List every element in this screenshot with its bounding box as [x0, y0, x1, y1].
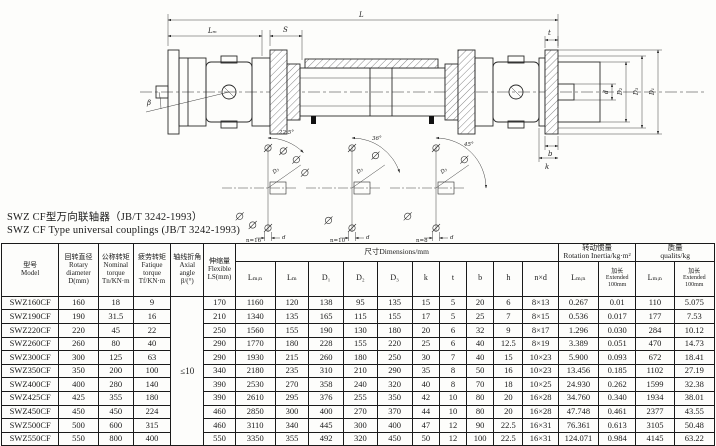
value-cell: 50.48: [674, 419, 714, 433]
value-cell: 40: [467, 351, 494, 365]
bolt-circle-label-1: D₃: [271, 167, 281, 176]
value-cell: 210: [344, 364, 377, 378]
col-header-lm: Lₘ: [275, 261, 308, 296]
value-cell: 390: [204, 391, 235, 405]
value-cell: 16: [494, 364, 523, 378]
model-cell: SWZ500CF: [2, 419, 59, 433]
value-cell: 43.55: [674, 405, 714, 419]
value-cell: 12.5: [494, 337, 523, 351]
value-cell: 16×31: [523, 432, 558, 446]
value-cell: 44: [412, 405, 439, 419]
value-cell: 0.030: [599, 323, 636, 337]
value-cell: 1930: [235, 351, 275, 365]
value-cell: 140: [133, 378, 170, 392]
value-cell: 250: [204, 323, 235, 337]
table-row: SWZ160CF160189≤1017011601201389513515520…: [2, 296, 715, 310]
value-cell: 135: [275, 310, 308, 324]
value-cell: 24.930: [558, 378, 598, 392]
dim-label-D3: D₃: [633, 87, 640, 96]
value-cell: 370: [377, 405, 412, 419]
value-cell: 12: [439, 419, 466, 433]
value-cell: 445: [309, 419, 344, 433]
value-cell: 235: [275, 364, 308, 378]
value-cell: 124.071: [558, 432, 598, 446]
value-cell: 3350: [235, 432, 275, 446]
col-header-rotary-diameter: 回转直径 Rotary diameter D(mm): [59, 244, 98, 297]
value-cell: 18: [494, 378, 523, 392]
value-cell: 425: [59, 391, 98, 405]
value-cell: 270: [344, 405, 377, 419]
value-cell: 10×23: [523, 364, 558, 378]
value-cell: 16×28: [523, 405, 558, 419]
angle-label-2: 36°: [372, 136, 382, 142]
value-cell: 400: [133, 432, 170, 446]
value-cell: 0.185: [599, 364, 636, 378]
col-header-axial-angle: 轴线折角 Axial angle β/(°): [171, 244, 204, 297]
value-cell: 31.5: [98, 310, 133, 324]
value-cell: 460: [204, 405, 235, 419]
value-cell: 170: [204, 296, 235, 310]
col-header-model: 型号 Model: [2, 244, 59, 297]
dim-label-L: L: [358, 11, 364, 19]
dim-label-Lm: Lₘ: [207, 27, 217, 35]
angle-label-3: 45°: [463, 142, 474, 148]
model-cell: SWZ220CF: [2, 323, 59, 337]
value-cell: 672: [636, 351, 674, 365]
group-header-rotation-inertia: 转动惯量 Rotation Inertia/kg·m²: [558, 244, 636, 262]
value-cell: 16: [133, 310, 170, 324]
value-cell: 320: [344, 432, 377, 446]
value-cell: 12: [439, 432, 466, 446]
bolt-circle-label-2: D₃: [355, 167, 365, 176]
col-header-d2: D₂: [344, 261, 377, 296]
value-cell: 40: [133, 337, 170, 351]
table-row: SWZ550CF55080040055033503554923204505012…: [2, 432, 715, 446]
value-cell: 13.456: [558, 364, 598, 378]
value-cell: 42: [412, 391, 439, 405]
value-cell: 40: [467, 337, 494, 351]
value-cell: 110: [636, 296, 674, 310]
dim-label-D1: D₁: [649, 88, 656, 96]
value-cell: 260: [59, 337, 98, 351]
value-cell: 120: [275, 296, 308, 310]
value-cell: 165: [309, 310, 344, 324]
value-cell: 10×23: [523, 351, 558, 365]
model-cell: SWZ400CF: [2, 378, 59, 392]
value-cell: 210: [204, 310, 235, 324]
model-cell: SWZ260CF: [2, 337, 59, 351]
value-cell: 177: [636, 310, 674, 324]
value-cell: 9: [133, 296, 170, 310]
col-header-flexible: 伸缩量 Flexible LS(mm): [204, 244, 235, 297]
value-cell: 3.389: [558, 337, 598, 351]
value-cell: 16×31: [523, 419, 558, 433]
value-cell: 4145: [636, 432, 674, 446]
value-cell: 20: [494, 391, 523, 405]
value-cell: 155: [377, 310, 412, 324]
model-cell: SWZ160CF: [2, 296, 59, 310]
angle-label-1: 22.5°: [278, 130, 294, 136]
value-cell: 350: [377, 391, 412, 405]
value-cell: 63: [133, 351, 170, 365]
value-cell: 1599: [636, 378, 674, 392]
table-row: SWZ450CF45045022446028503004002703704410…: [2, 405, 715, 419]
value-cell: 2850: [235, 405, 275, 419]
value-cell: 0.613: [599, 419, 636, 433]
value-cell: 1770: [235, 337, 275, 351]
value-cell: 550: [204, 432, 235, 446]
group-header-mass: 质量 qualits/kg: [636, 244, 715, 262]
table-row: SWZ190CF19031.51621013401351651151551752…: [2, 310, 715, 324]
value-cell: 300: [59, 351, 98, 365]
detail-d-label-2: d: [366, 235, 370, 241]
value-cell: 16×28: [523, 391, 558, 405]
value-cell: 5: [439, 296, 466, 310]
value-cell: 300: [275, 405, 308, 419]
value-cell: 34.760: [558, 391, 598, 405]
value-cell: 376: [309, 391, 344, 405]
value-cell: 290: [377, 364, 412, 378]
value-cell: 80: [467, 405, 494, 419]
value-cell: 160: [59, 296, 98, 310]
value-cell: 125: [98, 351, 133, 365]
value-cell: 8: [439, 364, 466, 378]
value-cell: 1.296: [558, 323, 598, 337]
value-cell: 22.5: [494, 432, 523, 446]
value-cell: 800: [98, 432, 133, 446]
bolt-circle-label-3: D₃: [439, 167, 449, 176]
dim-label-beta: β: [146, 99, 151, 107]
value-cell: 310: [309, 364, 344, 378]
bolt-pattern-detail-2: [306, 138, 400, 241]
main-view: [140, 14, 704, 134]
value-cell: 50: [467, 364, 494, 378]
value-cell: 2377: [636, 405, 674, 419]
value-cell: 10: [439, 405, 466, 419]
value-cell: 22: [133, 323, 170, 337]
value-cell: 340: [204, 364, 235, 378]
value-cell: 15: [412, 296, 439, 310]
col-header-h: h: [494, 261, 523, 296]
value-cell: 0.536: [558, 310, 598, 324]
col-header-b: b: [467, 261, 494, 296]
value-cell: 18.41: [674, 351, 714, 365]
value-cell: 155: [275, 323, 308, 337]
value-cell: 8×13: [523, 296, 558, 310]
value-cell: 76.361: [558, 419, 598, 433]
value-cell: 25: [467, 310, 494, 324]
table-row: SWZ350CF35020010034021802353102102903585…: [2, 364, 715, 378]
value-cell: 70: [467, 378, 494, 392]
value-cell: 5.900: [558, 351, 598, 365]
value-cell: 260: [309, 351, 344, 365]
value-cell: 400: [309, 405, 344, 419]
value-cell: 14.73: [674, 337, 714, 351]
col-header-t: t: [439, 261, 466, 296]
axial-angle-cell: ≤10: [171, 296, 204, 446]
value-cell: 135: [377, 296, 412, 310]
value-cell: 7.53: [674, 310, 714, 324]
value-cell: 190: [59, 310, 98, 324]
value-cell: 358: [309, 378, 344, 392]
value-cell: 190: [309, 323, 344, 337]
value-cell: 1560: [235, 323, 275, 337]
doc-title-zh: SWZ CF型万向联轴器（JB/T 3242-1993）: [7, 209, 203, 224]
doc-title-en: SWZ CF Type universal couplings (JB/T 32…: [7, 225, 240, 236]
value-cell: 355: [98, 391, 133, 405]
value-cell: 600: [98, 419, 133, 433]
value-cell: 10: [439, 391, 466, 405]
value-cell: 180: [133, 391, 170, 405]
value-cell: 38.01: [674, 391, 714, 405]
value-cell: 20: [467, 296, 494, 310]
value-cell: 17: [412, 310, 439, 324]
value-cell: 130: [344, 323, 377, 337]
bolt-pattern-detail-3: [390, 138, 486, 241]
value-cell: 390: [204, 378, 235, 392]
group-header-dimensions: 尺寸Dimensions/mm: [235, 244, 558, 262]
value-cell: 470: [636, 337, 674, 351]
value-cell: 95: [344, 296, 377, 310]
detail-d-label-3: d: [450, 235, 454, 241]
value-cell: 355: [275, 432, 308, 446]
table-row: SWZ220CF22045222501560155190130180206329…: [2, 323, 715, 337]
value-cell: 155: [344, 337, 377, 351]
value-cell: 180: [344, 351, 377, 365]
value-cell: 250: [377, 351, 412, 365]
value-cell: 300: [344, 419, 377, 433]
col-header-mass-extended: 加长 Extended 100mm: [674, 261, 714, 296]
value-cell: 2180: [235, 364, 275, 378]
value-cell: 220: [377, 337, 412, 351]
value-cell: 8×17: [523, 323, 558, 337]
value-cell: 115: [344, 310, 377, 324]
value-cell: 240: [344, 378, 377, 392]
value-cell: 1934: [636, 391, 674, 405]
table-row: SWZ400CF40028014039025302703582403204087…: [2, 378, 715, 392]
value-cell: 50: [412, 432, 439, 446]
technical-drawing: L Lₘ S β t b k d D₂ D₃ D₁ 22.5° 36° 45° …: [0, 0, 716, 243]
value-cell: 450: [377, 432, 412, 446]
col-header-lmin: Lₘᵢₙ: [235, 261, 275, 296]
col-header-mass-lmin: Lₘᵢₙ: [636, 261, 674, 296]
dim-label-k: k: [545, 163, 549, 171]
value-cell: 20: [412, 323, 439, 337]
value-cell: 25: [412, 337, 439, 351]
value-cell: 47.748: [558, 405, 598, 419]
value-cell: 0.267: [558, 296, 598, 310]
value-cell: 80: [467, 391, 494, 405]
value-cell: 320: [377, 378, 412, 392]
value-cell: 270: [275, 378, 308, 392]
value-cell: 90: [467, 419, 494, 433]
dim-label-t: t: [548, 29, 551, 37]
value-cell: 15: [494, 351, 523, 365]
value-cell: 10.12: [674, 323, 714, 337]
value-cell: 220: [59, 323, 98, 337]
model-cell: SWZ450CF: [2, 405, 59, 419]
model-cell: SWZ425CF: [2, 391, 59, 405]
value-cell: 80: [98, 337, 133, 351]
value-cell: 350: [59, 364, 98, 378]
value-cell: 400: [377, 419, 412, 433]
col-header-nxd: n×d: [523, 261, 558, 296]
value-cell: 450: [59, 405, 98, 419]
value-cell: 8×15: [523, 310, 558, 324]
value-cell: 45: [98, 323, 133, 337]
value-cell: 290: [204, 351, 235, 365]
value-cell: 6: [494, 296, 523, 310]
dim-label-D2: D₂: [617, 87, 624, 96]
catalog-page: { "title": { "line1": "SWZ CF型万向联轴器（JB/T…: [0, 0, 716, 446]
table-row: SWZ260CF26080402901770180228155220256401…: [2, 337, 715, 351]
value-cell: 492: [309, 432, 344, 446]
value-cell: 40: [412, 378, 439, 392]
col-header-fatigue-torque: 疲劳转矩 Fatique torque Tf/KN·m: [133, 244, 170, 297]
value-cell: 280: [98, 378, 133, 392]
value-cell: 180: [377, 323, 412, 337]
value-cell: 3105: [636, 419, 674, 433]
col-header-inertia-extended: 加长 Extended 100mm: [599, 261, 636, 296]
col-header-d3: D₃: [377, 261, 412, 296]
detail-d-label-1: d: [282, 235, 286, 241]
col-header-nominal-torque: 公称转矩 Nominal torque Tn/KN·m: [98, 244, 133, 297]
value-cell: 228: [309, 337, 344, 351]
value-cell: 0.01: [599, 296, 636, 310]
value-cell: 400: [59, 378, 98, 392]
value-cell: 0.340: [599, 391, 636, 405]
value-cell: 0.093: [599, 351, 636, 365]
value-cell: 27.19: [674, 364, 714, 378]
value-cell: 550: [59, 432, 98, 446]
value-cell: 32.38: [674, 378, 714, 392]
value-cell: 500: [59, 419, 98, 433]
value-cell: 0.984: [599, 432, 636, 446]
value-cell: 8: [439, 378, 466, 392]
table-row: SWZ425CF42535518039026102953762553504210…: [2, 391, 715, 405]
table-row: SWZ500CF50060031546031103404453004004712…: [2, 419, 715, 433]
value-cell: 138: [309, 296, 344, 310]
model-cell: SWZ300CF: [2, 351, 59, 365]
value-cell: 0.051: [599, 337, 636, 351]
model-cell: SWZ550CF: [2, 432, 59, 446]
value-cell: 10×25: [523, 378, 558, 392]
dim-label-d: d: [603, 90, 610, 94]
col-header-inertia-lmin: Lₘᵢₙ: [558, 261, 598, 296]
value-cell: 284: [636, 323, 674, 337]
value-cell: 290: [204, 337, 235, 351]
value-cell: 180: [275, 337, 308, 351]
value-cell: 3110: [235, 419, 275, 433]
value-cell: 224: [133, 405, 170, 419]
value-cell: 200: [98, 364, 133, 378]
value-cell: 6: [439, 323, 466, 337]
value-cell: 9: [494, 323, 523, 337]
model-cell: SWZ190CF: [2, 310, 59, 324]
value-cell: 5.075: [674, 296, 714, 310]
value-cell: 1102: [636, 364, 674, 378]
value-cell: 8×19: [523, 337, 558, 351]
value-cell: 215: [275, 351, 308, 365]
col-header-d1: D₁: [309, 261, 344, 296]
dim-label-b: b: [548, 150, 553, 158]
model-cell: SWZ350CF: [2, 364, 59, 378]
value-cell: 255: [344, 391, 377, 405]
value-cell: 18: [98, 296, 133, 310]
value-cell: 20: [494, 405, 523, 419]
value-cell: 22.5: [494, 419, 523, 433]
value-cell: 0.262: [599, 378, 636, 392]
value-cell: 2610: [235, 391, 275, 405]
value-cell: 47: [412, 419, 439, 433]
value-cell: 32: [467, 323, 494, 337]
value-cell: 1160: [235, 296, 275, 310]
value-cell: 5: [439, 310, 466, 324]
value-cell: 35: [412, 364, 439, 378]
value-cell: 340: [275, 419, 308, 433]
value-cell: 63.22: [674, 432, 714, 446]
value-cell: 0.461: [599, 405, 636, 419]
col-header-k: k: [412, 261, 439, 296]
table-row: SWZ300CF30012563290193021526018025030740…: [2, 351, 715, 365]
value-cell: 1340: [235, 310, 275, 324]
value-cell: 100: [467, 432, 494, 446]
value-cell: 450: [98, 405, 133, 419]
value-cell: 7: [494, 310, 523, 324]
dimension-table: 型号 Model 回转直径 Rotary diameter D(mm) 公称转矩…: [1, 243, 715, 446]
value-cell: 7: [439, 351, 466, 365]
value-cell: 30: [412, 351, 439, 365]
table-body: SWZ160CF160189≤1017011601201389513515520…: [2, 296, 715, 446]
dim-label-S: S: [283, 26, 288, 34]
value-cell: 2530: [235, 378, 275, 392]
value-cell: 295: [275, 391, 308, 405]
value-cell: 460: [204, 419, 235, 433]
value-cell: 100: [133, 364, 170, 378]
value-cell: 6: [439, 337, 466, 351]
value-cell: 0.017: [599, 310, 636, 324]
value-cell: 315: [133, 419, 170, 433]
